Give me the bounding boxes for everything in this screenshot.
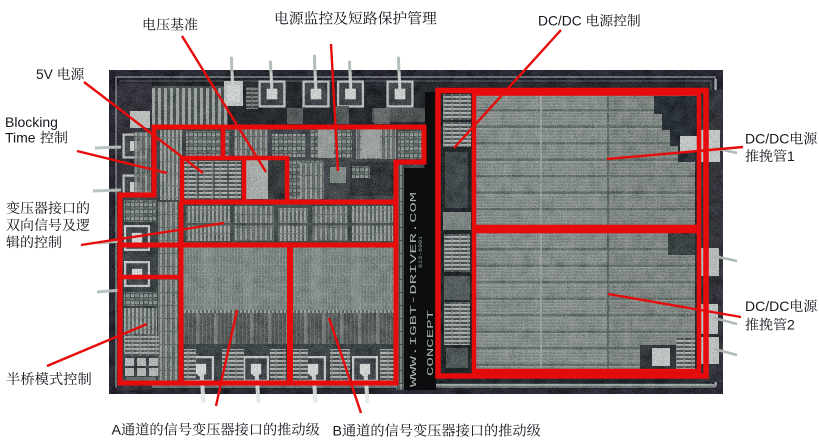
svg-text:Blocking: Blocking [5,114,58,130]
svg-text:2: 2 [787,317,795,333]
svg-text:1: 1 [787,148,795,164]
svg-text:WWW.IGBT-DRIVER.COM: WWW.IGBT-DRIVER.COM [408,191,419,387]
svg-text:CONCEPT: CONCEPT [425,310,436,376]
svg-text:DC/DC: DC/DC [745,298,789,314]
svg-text:DC/DC: DC/DC [745,131,789,147]
svg-text:B: B [333,424,342,440]
svg-text:5V: 5V [36,67,57,82]
svg-text:A: A [112,423,122,439]
svg-text:813-6901: 813-6901 [417,235,424,268]
svg-text:DC/DC: DC/DC [538,14,586,29]
svg-text:Time: Time [5,130,39,146]
